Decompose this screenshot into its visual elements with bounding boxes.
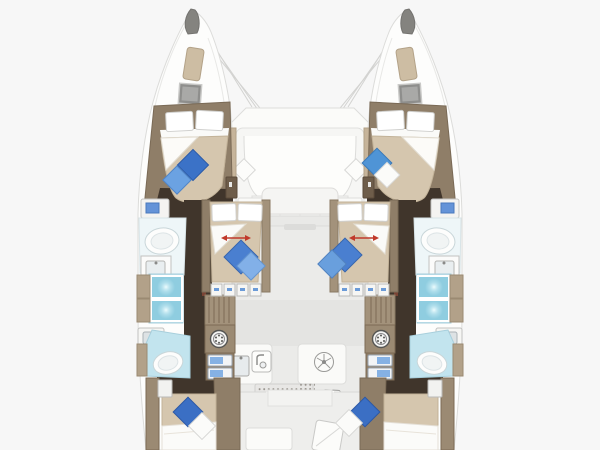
drawer-front xyxy=(210,357,223,364)
dishwasher-icon xyxy=(252,351,271,372)
washing-machine-cabinet xyxy=(205,325,235,353)
washing-machine-icon xyxy=(211,331,228,348)
deck-hatch xyxy=(178,83,201,104)
tv-cabinet xyxy=(141,199,169,218)
cabin-entry-door xyxy=(226,177,237,198)
galley-floor xyxy=(214,300,386,346)
floor-plan-svg xyxy=(0,0,600,450)
salon-front-seat xyxy=(262,188,338,214)
companionway xyxy=(268,390,332,406)
cabin-door xyxy=(158,380,172,397)
pillow xyxy=(212,204,237,222)
pillow xyxy=(238,204,263,222)
faucet-icon xyxy=(240,357,243,360)
pillow xyxy=(166,111,194,131)
cockpit-bench xyxy=(246,428,292,450)
floor-plan-figure xyxy=(0,0,600,450)
aft-head xyxy=(137,328,190,378)
forward-head xyxy=(137,218,186,323)
salon-door xyxy=(284,224,316,230)
fan-icon xyxy=(315,353,334,372)
drawer-front xyxy=(210,370,223,377)
pillow xyxy=(195,110,223,130)
fridge-drawers xyxy=(206,353,234,380)
louver-cabinet xyxy=(205,295,235,325)
tv-screen-icon xyxy=(146,203,159,213)
